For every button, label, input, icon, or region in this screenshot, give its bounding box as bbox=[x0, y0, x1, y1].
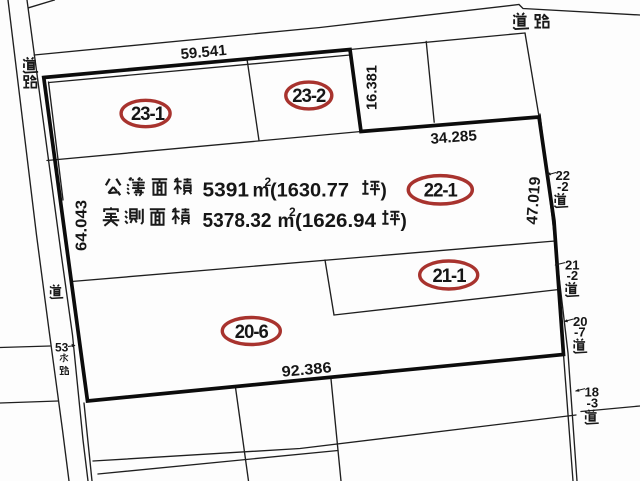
svg-text:-3: -3 bbox=[587, 396, 599, 411]
svg-text:21-1: 21-1 bbox=[433, 266, 467, 287]
svg-text:23-2: 23-2 bbox=[292, 86, 325, 107]
svg-text:-2: -2 bbox=[557, 179, 569, 194]
svg-text:64.043: 64.043 bbox=[74, 200, 91, 251]
svg-text:47.019: 47.019 bbox=[524, 176, 544, 225]
svg-text:-7: -7 bbox=[574, 325, 586, 340]
svg-text:(1626.94: (1626.94 bbox=[295, 211, 376, 232]
svg-text:5391: 5391 bbox=[203, 179, 250, 202]
svg-text:5378.32: 5378.32 bbox=[203, 209, 272, 232]
svg-text:16.381: 16.381 bbox=[365, 65, 381, 110]
svg-text:): ) bbox=[381, 181, 387, 202]
svg-text:-2: -2 bbox=[567, 268, 579, 283]
svg-text:(1630.77: (1630.77 bbox=[270, 181, 349, 202]
svg-text:): ) bbox=[401, 211, 407, 232]
svg-text:53: 53 bbox=[55, 341, 69, 355]
svg-text:22-1: 22-1 bbox=[424, 181, 458, 202]
svg-text:20-6: 20-6 bbox=[235, 322, 268, 343]
svg-text:23-1: 23-1 bbox=[131, 104, 165, 125]
